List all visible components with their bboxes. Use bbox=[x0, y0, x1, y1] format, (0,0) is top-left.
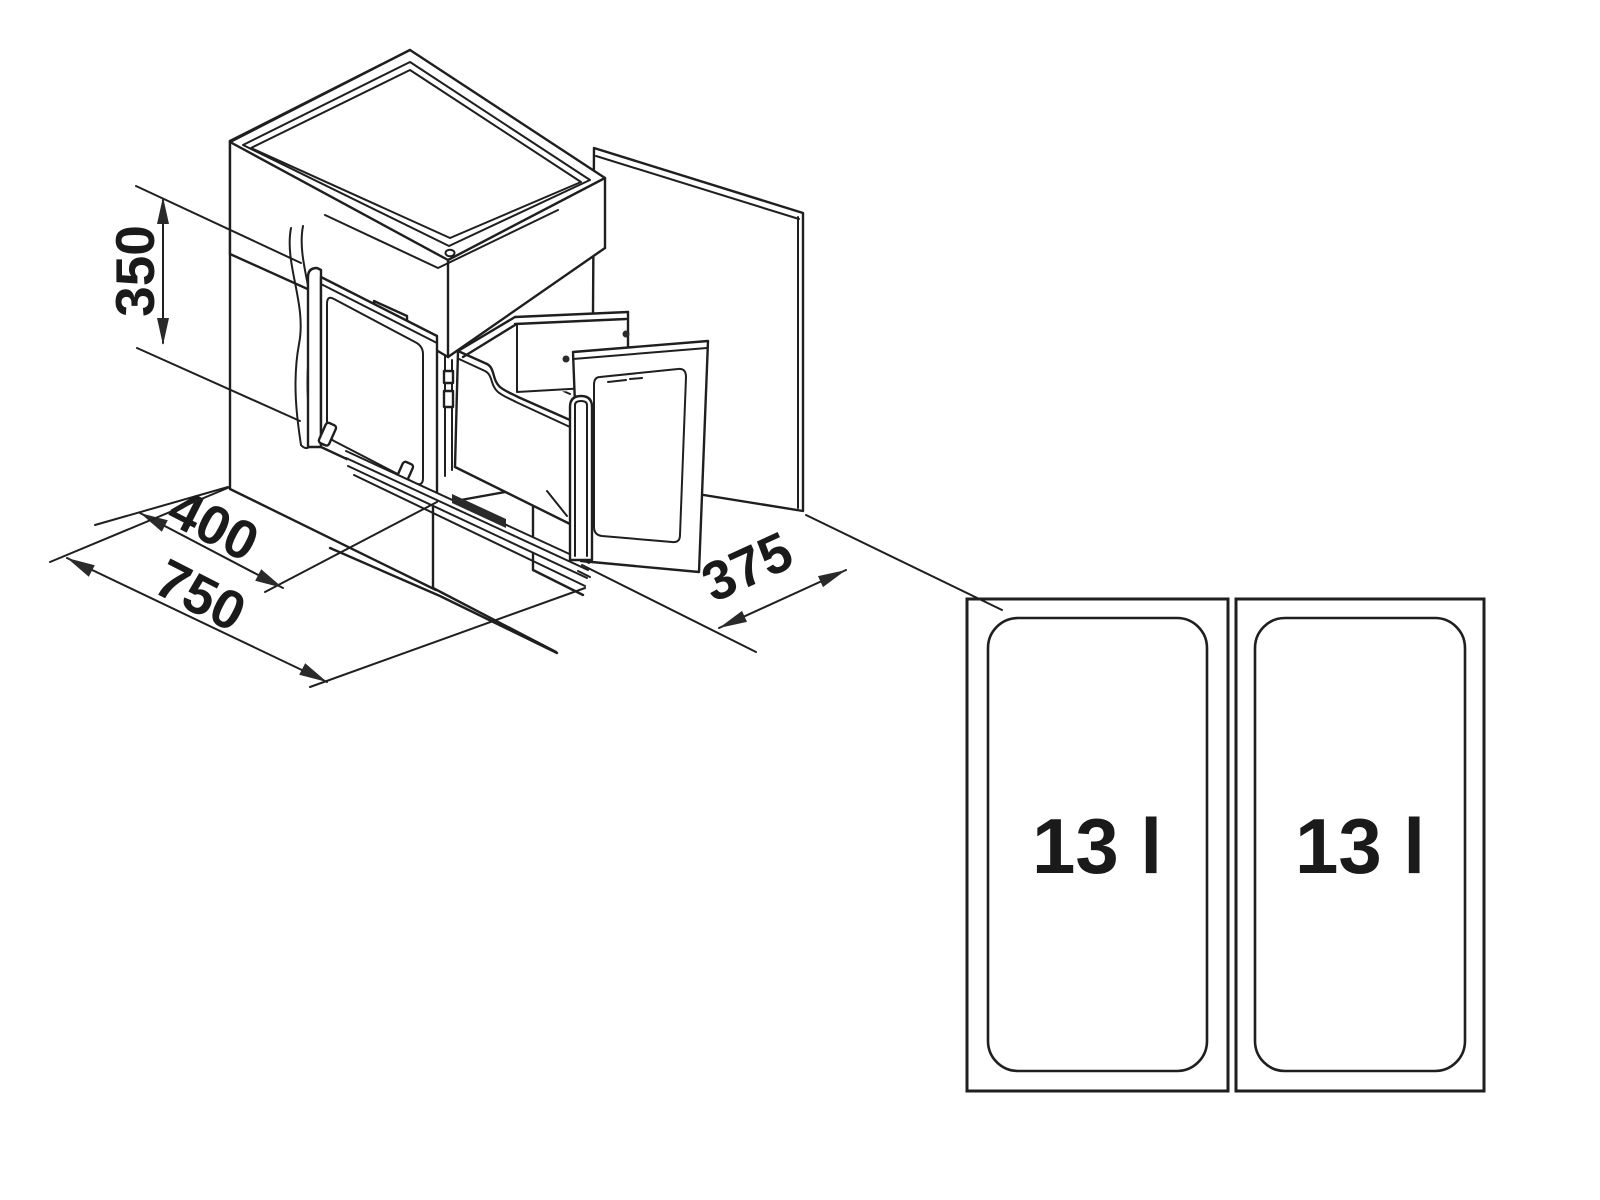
dimension-400: 400 bbox=[95, 477, 437, 592]
dim-400-arrow-right bbox=[255, 569, 283, 588]
sink-body-mask bbox=[230, 50, 605, 357]
cabinet-base-floor-edge bbox=[330, 548, 557, 653]
dim-375-arrow-right bbox=[818, 570, 846, 587]
installation-diagram-page: 350 400 750 375 13 l 13 l bbox=[0, 0, 1600, 1200]
bin-right-hole-1 bbox=[563, 356, 570, 363]
frame-right-post bbox=[570, 396, 592, 560]
pullout-frame-right bbox=[570, 341, 708, 572]
dim-375-ext-right bbox=[806, 515, 1002, 610]
dimension-750: 750 bbox=[50, 487, 585, 687]
dim-375-arrow-left bbox=[719, 611, 747, 628]
frame-middle-detail-1 bbox=[444, 371, 453, 383]
bin-right-hole-2 bbox=[623, 331, 630, 338]
dim-750-arrow-left bbox=[67, 558, 95, 577]
dim-350-ext-bottom bbox=[137, 348, 300, 421]
dim-350-arrow-down bbox=[157, 318, 169, 345]
top-view: 13 l 13 l bbox=[967, 599, 1484, 1091]
top-view-bin-right-label: 13 l bbox=[1295, 802, 1425, 890]
installation-diagram-svg: 350 400 750 375 13 l 13 l bbox=[0, 0, 1600, 1200]
top-view-bin-left-label: 13 l bbox=[1032, 802, 1162, 890]
dim-375-label: 375 bbox=[693, 519, 802, 613]
frame-middle-detail-2 bbox=[444, 391, 453, 407]
dim-350-label: 350 bbox=[104, 225, 166, 317]
frame-left-post bbox=[308, 268, 321, 447]
dim-750-ext-right bbox=[310, 588, 585, 687]
dim-750-arrow-right bbox=[299, 663, 327, 682]
sink-outline bbox=[230, 50, 605, 357]
